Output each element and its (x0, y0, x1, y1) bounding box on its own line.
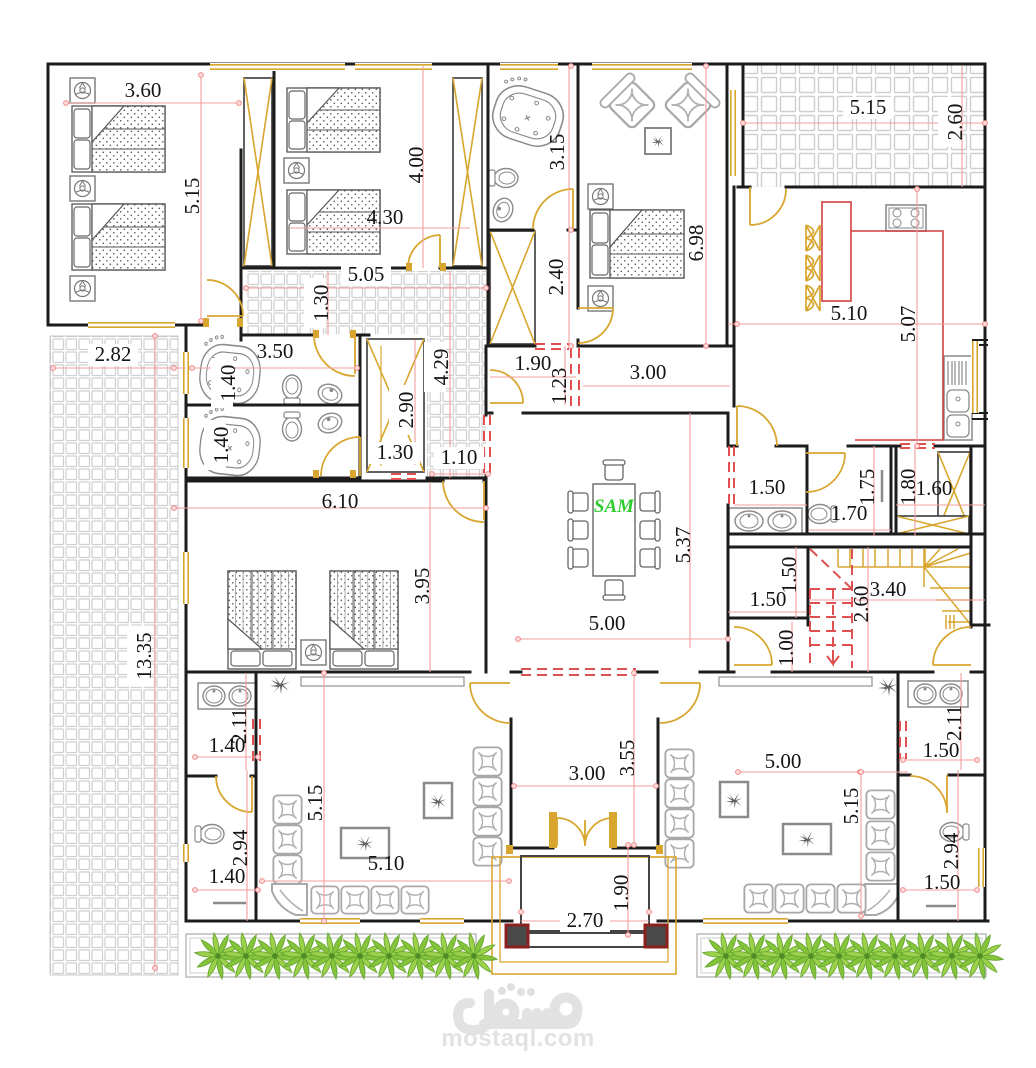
svg-text:1.40: 1.40 (209, 864, 246, 888)
svg-text:1.30: 1.30 (377, 440, 414, 464)
svg-text:2.94: 2.94 (939, 832, 963, 869)
svg-text:3.55: 3.55 (615, 740, 639, 777)
svg-text:2.11: 2.11 (227, 708, 251, 744)
svg-text:2.40: 2.40 (544, 259, 568, 296)
svg-text:3.15: 3.15 (545, 134, 569, 171)
svg-text:1.90: 1.90 (609, 875, 633, 912)
svg-text:1.23: 1.23 (547, 368, 571, 405)
svg-text:5.15: 5.15 (180, 178, 204, 215)
svg-text:1.50: 1.50 (749, 475, 786, 499)
svg-text:5.00: 5.00 (765, 749, 802, 773)
svg-text:1.50: 1.50 (750, 587, 787, 611)
svg-text:1.75: 1.75 (855, 469, 879, 506)
svg-text:5.15: 5.15 (850, 95, 887, 119)
svg-text:1.00: 1.00 (774, 630, 798, 667)
svg-text:1.60: 1.60 (916, 476, 953, 500)
svg-text:6.98: 6.98 (684, 225, 708, 262)
svg-text:4.00: 4.00 (404, 147, 428, 184)
svg-text:3.60: 3.60 (125, 78, 162, 102)
svg-text:5.00: 5.00 (589, 611, 626, 635)
svg-text:2.11: 2.11 (942, 705, 966, 741)
svg-text:2.82: 2.82 (95, 342, 132, 366)
svg-text:3.00: 3.00 (630, 360, 667, 384)
svg-text:mostaql.com: mostaql.com (441, 1025, 595, 1052)
svg-text:6.10: 6.10 (322, 489, 359, 513)
svg-text:SAM: SAM (594, 496, 635, 517)
svg-text:5.10: 5.10 (368, 851, 405, 875)
svg-text:4.30: 4.30 (367, 205, 404, 229)
svg-text:2.94: 2.94 (228, 829, 252, 866)
svg-text:3.50: 3.50 (257, 339, 294, 363)
svg-text:2.60: 2.60 (943, 104, 967, 141)
svg-text:5.07: 5.07 (896, 306, 920, 343)
svg-text:5.15: 5.15 (303, 785, 327, 822)
svg-text:5.15: 5.15 (839, 788, 863, 825)
svg-text:1.10: 1.10 (441, 445, 478, 469)
svg-text:3.95: 3.95 (410, 568, 434, 605)
svg-text:2.70: 2.70 (567, 908, 604, 932)
svg-text:5.05: 5.05 (348, 262, 385, 286)
svg-text:5.37: 5.37 (671, 527, 695, 564)
svg-text:3.00: 3.00 (569, 761, 606, 785)
svg-text:1.40: 1.40 (216, 365, 240, 402)
svg-text:13.35: 13.35 (132, 632, 156, 679)
svg-text:1.40: 1.40 (209, 427, 233, 464)
svg-text:5.10: 5.10 (831, 301, 868, 325)
svg-text:3.40: 3.40 (870, 577, 907, 601)
svg-text:1.50: 1.50 (924, 870, 961, 894)
svg-text:1.30: 1.30 (309, 285, 333, 322)
svg-text:2.90: 2.90 (394, 392, 418, 429)
svg-text:4.29: 4.29 (429, 349, 453, 386)
svg-text:1.90: 1.90 (515, 351, 552, 375)
